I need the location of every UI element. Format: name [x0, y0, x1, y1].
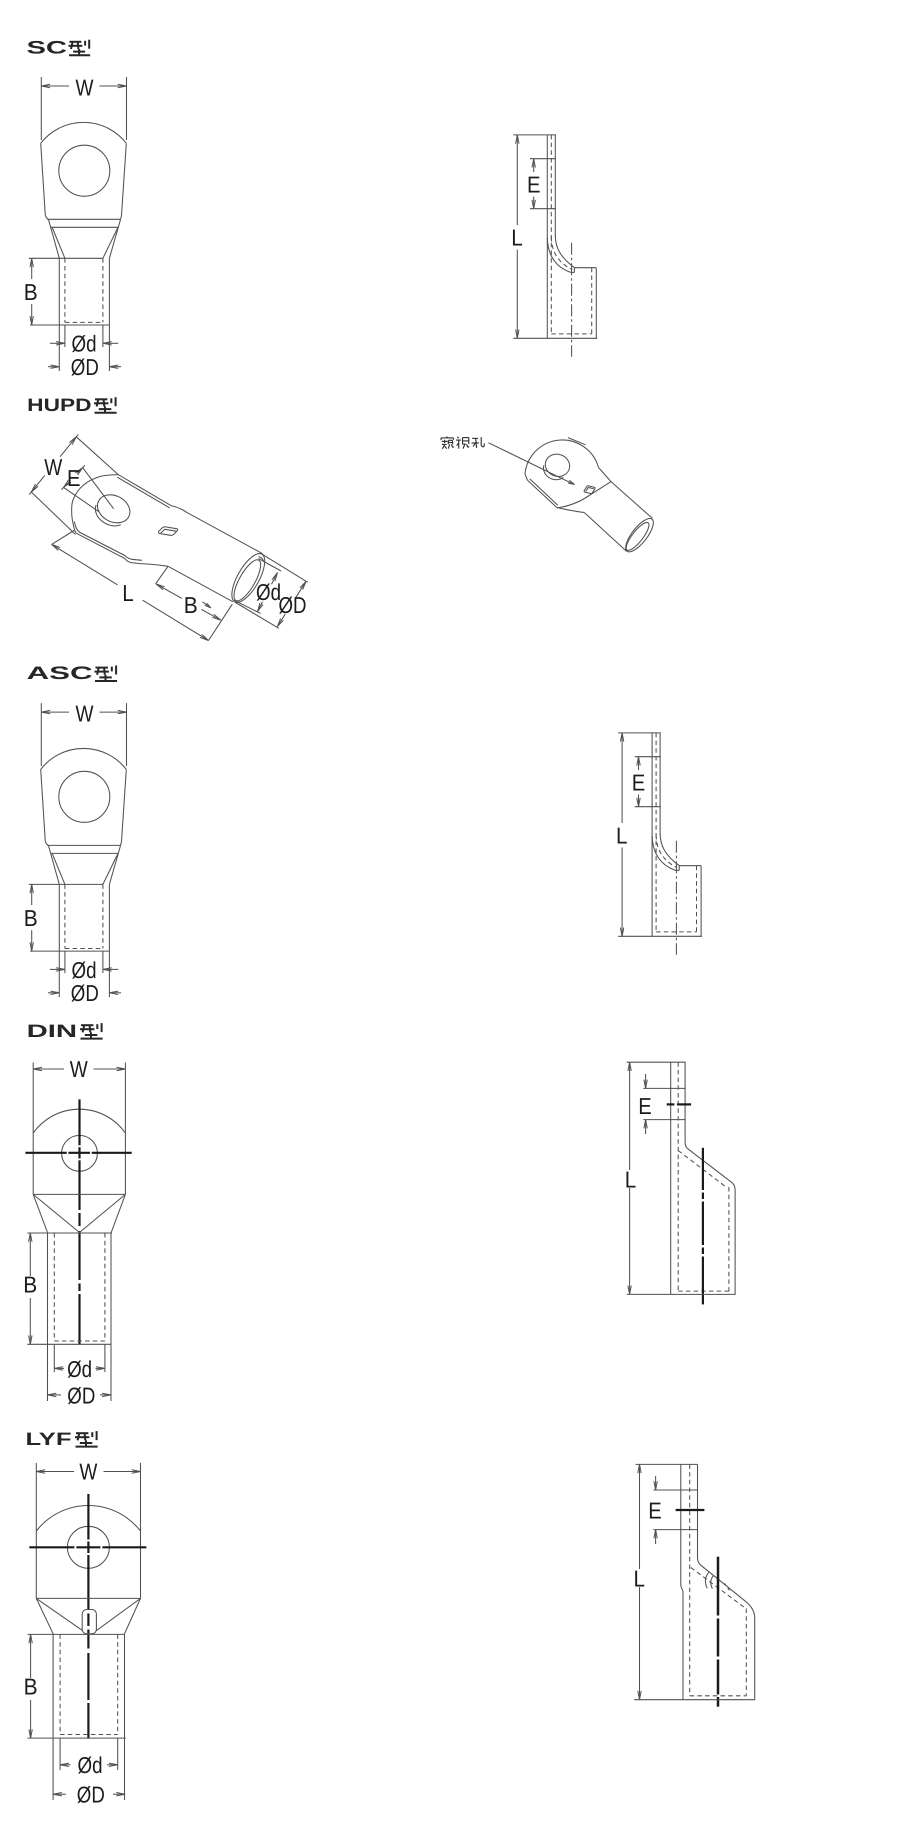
svg-text:HUPD: HUPD	[27, 395, 91, 415]
svg-text:E: E	[632, 769, 646, 795]
svg-text:E: E	[67, 465, 81, 491]
svg-text:ØD: ØD	[67, 1382, 95, 1408]
svg-text:LYF: LYF	[26, 1429, 72, 1449]
svg-text:W: W	[79, 1459, 97, 1485]
svg-text:W: W	[76, 700, 94, 726]
svg-text:ØD: ØD	[71, 980, 99, 1006]
svg-text:ASC: ASC	[27, 663, 93, 683]
svg-text:ØD: ØD	[77, 1782, 105, 1808]
svg-text:L: L	[122, 580, 134, 606]
svg-text:Ød: Ød	[67, 1356, 92, 1382]
svg-text:ØD: ØD	[279, 592, 307, 618]
svg-text:B: B	[23, 1271, 37, 1297]
svg-text:Ød: Ød	[72, 331, 97, 357]
svg-text:B: B	[24, 279, 38, 305]
svg-text:E: E	[648, 1497, 662, 1523]
svg-text:Ød: Ød	[78, 1752, 103, 1778]
svg-text:E: E	[638, 1093, 652, 1119]
svg-text:L: L	[634, 1565, 646, 1591]
svg-text:L: L	[625, 1166, 637, 1192]
svg-text:W: W	[76, 74, 94, 100]
svg-text:W: W	[70, 1056, 88, 1082]
svg-text:L: L	[616, 823, 628, 849]
svg-text:DIN: DIN	[27, 1021, 78, 1041]
svg-text:L: L	[511, 225, 523, 251]
svg-text:B: B	[184, 592, 198, 618]
svg-text:ØD: ØD	[71, 354, 99, 380]
svg-text:B: B	[24, 1673, 38, 1699]
svg-text:W: W	[44, 454, 62, 480]
svg-text:Ød: Ød	[256, 579, 281, 605]
svg-text:B: B	[24, 905, 38, 931]
svg-text:E: E	[527, 171, 541, 197]
svg-text:SC: SC	[27, 38, 68, 58]
svg-text:Ød: Ød	[72, 957, 97, 983]
